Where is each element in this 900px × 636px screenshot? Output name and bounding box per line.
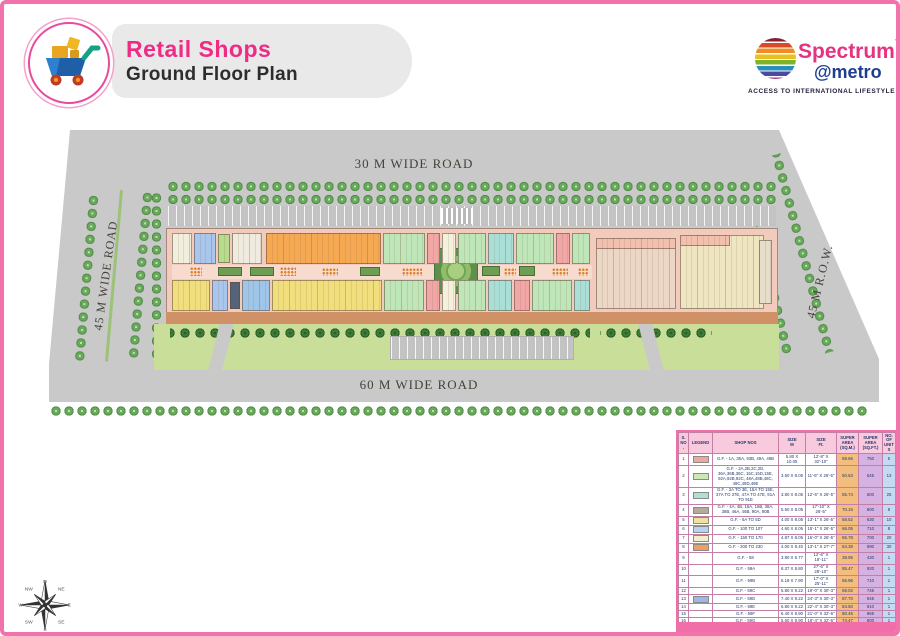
legend-row: 1G.F. - 1A, 35A, 93B, 49A, 49B5.80 X 10.… (679, 454, 896, 466)
shop-block (384, 280, 424, 311)
legend-cell: G.F. - 59C (713, 588, 779, 595)
legend-cell: 87.70 (837, 595, 859, 604)
legend-swatch-cell (689, 543, 713, 552)
legend-cell: 16'-0" X 26'-5" (806, 534, 837, 543)
compass-se: SE (58, 619, 65, 625)
legend-cell: 50.63 (837, 466, 859, 488)
legend-row: 4G.F. - 4A, 4B, 16A, 16B, 38A, 38B, 46A,… (679, 504, 896, 516)
legend-cell: 39.95 (837, 552, 859, 564)
shop-block (172, 280, 210, 311)
legend-row: 16G.F. - 59G5.60 X 9.9018'-4" X 32'-6"74… (679, 618, 896, 622)
legend-cell: 2 (679, 466, 689, 488)
legend-swatch-cell (689, 611, 713, 618)
legend-cell: 65.96 (837, 576, 859, 588)
corridor-planter (482, 266, 500, 276)
legend-swatch-cell (689, 534, 713, 543)
corridor-planter (360, 267, 380, 276)
legend-cell: 24'-3" X 30'-3" (806, 595, 837, 604)
legend-cell: 25 (883, 487, 896, 504)
legend-cell: 545 (859, 466, 883, 488)
shop-block (172, 233, 192, 264)
legend-cell: G.F. - 100 TO 107 (713, 525, 779, 534)
road-label-bottom: 60 M WIDE ROAD (339, 377, 499, 393)
legend-cell: 4 (679, 504, 689, 516)
legend-cell: 5 (679, 516, 689, 525)
legend-row: 7G.F. - 150 TO 1704.87 X 8.0516'-0" X 26… (679, 534, 896, 543)
legend-cell: 800 (859, 618, 883, 622)
legend-row: 8G.F. - 200 TO 2304.00 X 8.4013'-1" X 27… (679, 543, 896, 552)
legend-color-swatch (693, 517, 709, 524)
legend-cell: 6.80 X 9.22 (779, 604, 806, 611)
legend-cell: G.F. - 59G (713, 618, 779, 622)
legend-cell: 69.66 (837, 454, 859, 466)
legend-cell: 745 (859, 588, 883, 595)
legend-cell: 5.18 X 7.90 (779, 576, 806, 588)
cart-icon-badge (28, 22, 110, 104)
legend-cell: 865 (859, 611, 883, 618)
legend-header-row: S.NO.LEGENDSHOP NOSSIZEMSIZEFt.SUPER ARE… (679, 433, 896, 454)
legend-cell: 1 (679, 454, 689, 466)
legend-cell: 58.52 (837, 516, 859, 525)
legend-cell: 3.50 X 8.05 (779, 466, 806, 488)
corridor-seating (402, 268, 422, 276)
compass-nw: NW (25, 586, 34, 592)
legend-cell: 64.38 (837, 543, 859, 552)
legend-row: 5G.F. - 5A TO 5D4.00 X 8.0513'-1" X 26'-… (679, 516, 896, 525)
legend-cell: 13'-1" X 26'-5" (806, 516, 837, 525)
legend-cell: 22'-4" X 30'-3" (806, 604, 837, 611)
shop-block (230, 282, 240, 309)
legend-cell: 690 (859, 543, 883, 552)
trademark-symbol: TM (895, 40, 900, 46)
legend-column-header: SUPER AREA(SQ.M.) (837, 433, 859, 454)
shop-block (442, 280, 456, 311)
legend-cell: G.F. - 4A, 4B, 16A, 16B, 38A, 38B, 46A, … (713, 504, 779, 516)
legend-cell: 8 (883, 504, 896, 516)
legend-cell: 65.78 (837, 534, 859, 543)
crosswalk-north (441, 208, 473, 224)
shop-block (532, 280, 572, 311)
shop-block (556, 233, 570, 264)
legend-cell: 1 (883, 604, 896, 611)
legend-cell: G.F. - 200 TO 230 (713, 543, 779, 552)
legend-cell: 21'-0" X 32'-6" (806, 611, 837, 618)
legend-color-swatch (693, 596, 709, 603)
legend-column-header: S.NO. (679, 433, 689, 454)
shop-block (516, 233, 554, 264)
legend-cell: 700 (859, 534, 883, 543)
legend-row: 10G.F. - 59A8.37 X 8.8027'-6" X 28'-10"8… (679, 564, 896, 576)
corridor-planter (519, 266, 535, 276)
legend-row: 13G.F. - 59D7.40 X 9.2224'-3" X 30'-3"87… (679, 595, 896, 604)
legend-cell: 5.60 X 9.90 (779, 618, 806, 622)
legend-cell: 69.02 (837, 588, 859, 595)
legend-cell: 945 (859, 595, 883, 604)
legend-cell: G.F. - 5A TO 5D (713, 516, 779, 525)
legend-swatch-cell (689, 454, 713, 466)
legend-cell: 11'-6" X 26'-5" (806, 466, 837, 488)
legend-cell: 3.80 X 8.05 (779, 487, 806, 504)
legend-cell: 5 (883, 454, 896, 466)
legend-cell: 5.80 X 10.05 (779, 454, 806, 466)
shop-block (383, 233, 425, 264)
legend-cell: 74.47 (837, 618, 859, 622)
legend-column-header: NO. OFUNITS (883, 433, 896, 454)
shop-block (194, 233, 216, 264)
legend-cell: 4.87 X 8.05 (779, 534, 806, 543)
legend-cell: 1 (883, 595, 896, 604)
shop-block (212, 280, 228, 311)
legend-cell: 85.47 (837, 564, 859, 576)
legend-swatch-cell (689, 552, 713, 564)
corridor-seating (552, 268, 568, 276)
legend-cell: G.F. - 59B (713, 576, 779, 588)
legend-cell: 14 (679, 604, 689, 611)
corridor-planter (218, 267, 242, 276)
corridor-planter (250, 267, 274, 276)
legend-cell: 710 (859, 576, 883, 588)
legend-cell: 1 (883, 611, 896, 618)
spectrum-logo-icon (755, 38, 796, 79)
legend-color-swatch (693, 526, 709, 533)
compass-e: E (68, 603, 72, 609)
legend-cell: 55.74 (837, 487, 859, 504)
legend-column-header: SHOP NOS (713, 433, 779, 454)
shop-block (488, 233, 514, 264)
legend-cell: 16 (679, 618, 689, 622)
road-label-top: 30 M WIDE ROAD (334, 156, 494, 172)
legend-cell: 80.45 (837, 611, 859, 618)
tree-row-below-bottom-road (50, 404, 868, 418)
brand-name: SpectrumTM (798, 40, 900, 64)
legend-table: S.NO.LEGENDSHOP NOSSIZEMSIZEFt.SUPER ARE… (678, 432, 895, 622)
legend-cell: 800 (859, 504, 883, 516)
legend-cell: 30 (883, 543, 896, 552)
corridor-seating (190, 267, 202, 276)
legend-cell: 8 (883, 525, 896, 534)
legend-cell: 19'-0" X 30'-3" (806, 588, 837, 595)
shop-block (272, 280, 382, 311)
legend-swatch-cell (689, 604, 713, 611)
legend-cell: 750 (859, 454, 883, 466)
shop-block (596, 238, 676, 249)
south-apron (166, 312, 778, 324)
legend-cell: 630 (859, 516, 883, 525)
shop-block (442, 233, 456, 264)
legend-cell: 6 (679, 525, 689, 534)
legend-cell: 13'-1" X 27'-7" (806, 543, 837, 552)
legend-cell: 12'-6" X 18'-11" (806, 552, 837, 564)
legend-cell: 12'-6" X 26'-5" (806, 487, 837, 504)
legend-cell: 1 (883, 552, 896, 564)
tree-row-top-2 (166, 193, 778, 206)
legend-cell: 70.16 (837, 504, 859, 516)
legend-cell: 1 (883, 564, 896, 576)
legend-cell: 8 (679, 543, 689, 552)
legend-cell: 27'-6" X 28'-10" (806, 564, 837, 576)
legend-cell: 17'-10" X 26'-5" (806, 504, 837, 516)
legend-cell: 7 (679, 534, 689, 543)
shop-block (427, 233, 440, 264)
legend-cell: 4.00 X 8.40 (779, 543, 806, 552)
legend-panel: S.NO.LEGENDSHOP NOSSIZEMSIZEFt.SUPER ARE… (676, 430, 897, 632)
legend-cell: 5.50 X 8.05 (779, 504, 806, 516)
page-title: Retail Shops (126, 36, 271, 63)
shop-block (574, 280, 590, 311)
compass-rose: N NE E SE S SW W NW (18, 578, 72, 632)
corridor-seating (578, 268, 588, 276)
shop-block (680, 235, 764, 309)
page: Retail Shops Ground Floor Plan SpectrumT… (0, 0, 900, 636)
shop-block (458, 233, 486, 264)
tree-row-top-1 (166, 180, 778, 193)
legend-cell: 7.40 X 9.22 (779, 595, 806, 604)
legend-swatch-cell (689, 466, 713, 488)
compass-ne: NE (58, 586, 66, 592)
page-subtitle: Ground Floor Plan (126, 64, 298, 86)
legend-column-header: SIZEFt. (806, 433, 837, 454)
shopping-cart-icon (30, 24, 104, 98)
legend-column-header: SUPER AREA(SQ.FT.) (859, 433, 883, 454)
legend-cell: 11 (679, 576, 689, 588)
legend-row: 12G.F. - 59C5.80 X 9.2219'-0" X 30'-3"69… (679, 588, 896, 595)
legend-cell: 13 (883, 466, 896, 488)
legend-cell: 3.80 X 5.77 (779, 552, 806, 564)
legend-row: 2G.F. - 2A,2B,2C,2D, 36A,36B,36C, 15C,15… (679, 466, 896, 488)
legend-cell: G.F. - 59A (713, 564, 779, 576)
legend-column-header: SIZEM (779, 433, 806, 454)
south-parking-bay (390, 336, 574, 360)
legend-row: 11G.F. - 59B5.18 X 7.9017'-0" X 25'-11"6… (679, 576, 896, 588)
legend-cell: 710 (859, 525, 883, 534)
compass-w: W (18, 603, 23, 609)
legend-cell: G.F. - 58 (713, 552, 779, 564)
shop-block (426, 280, 440, 311)
shop-block (759, 240, 772, 304)
legend-cell: 17'-0" X 25'-11" (806, 576, 837, 588)
legend-cell: G.F. - 150 TO 170 (713, 534, 779, 543)
legend-cell: 66.05 (837, 525, 859, 534)
south-lawn-trees-2 (600, 326, 712, 340)
legend-swatch-cell (689, 595, 713, 604)
compass-s: S (43, 627, 47, 632)
shop-block (458, 280, 486, 311)
legend-cell: 9 (679, 552, 689, 564)
legend-cell: G.F. - 2A,2B,2C,2D, 36A,36B,36C, 15C,15D… (713, 466, 779, 488)
legend-row: 6G.F. - 100 TO 1074.60 X 8.0515'-1" X 26… (679, 525, 896, 534)
shop-block (218, 234, 230, 263)
legend-cell: 20 (883, 534, 896, 543)
legend-cell: 10 (883, 516, 896, 525)
corridor-seating (280, 267, 296, 276)
legend-color-swatch (693, 535, 709, 542)
brand-tagline: ACCESS TO INTERNATIONAL LIFESTYLE (748, 88, 895, 95)
legend-cell: G.F. - 59E (713, 604, 779, 611)
legend-cell: 6.40 X 9.90 (779, 611, 806, 618)
corridor-seating (322, 268, 338, 276)
legend-cell: 4.60 X 8.05 (779, 525, 806, 534)
legend-cell: G.F. - 59D (713, 595, 779, 604)
shop-block (488, 280, 512, 311)
legend-cell: 910 (859, 604, 883, 611)
brand-name-secondary: @metro (814, 62, 882, 83)
legend-row: 15G.F. - 59F6.40 X 9.9021'-0" X 32'-6"80… (679, 611, 896, 618)
legend-row: 14G.F. - 59E6.80 X 9.2222'-4" X 30'-3"84… (679, 604, 896, 611)
legend-swatch-cell (689, 576, 713, 588)
shop-block (514, 280, 530, 311)
legend-cell: 920 (859, 564, 883, 576)
legend-swatch-cell (689, 487, 713, 504)
legend-cell: G.F. - 3A TO 3E, 15A TO 15E, 37A TO 37E,… (713, 487, 779, 504)
compass-n: N (43, 579, 47, 585)
legend-swatch-cell (689, 588, 713, 595)
legend-cell: 13 (679, 595, 689, 604)
legend-color-swatch (693, 507, 709, 514)
legend-swatch-cell (689, 618, 713, 622)
legend-color-swatch (693, 473, 709, 480)
legend-color-swatch (693, 456, 709, 463)
legend-column-header: LEGEND (689, 433, 713, 454)
legend-cell: 3 (679, 487, 689, 504)
legend-color-swatch (693, 492, 709, 499)
legend-cell: 10 (679, 564, 689, 576)
legend-cell: 1 (883, 588, 896, 595)
legend-cell: 430 (859, 552, 883, 564)
corridor-seating (504, 268, 516, 276)
legend-swatch-cell (689, 504, 713, 516)
legend-cell: 12 (679, 588, 689, 595)
legend-cell: 15 (679, 611, 689, 618)
compass-sw: SW (25, 619, 33, 625)
legend-cell: 5.80 X 9.22 (779, 588, 806, 595)
legend-row: 3G.F. - 3A TO 3E, 15A TO 15E, 37A TO 37E… (679, 487, 896, 504)
legend-cell: G.F. - 59F (713, 611, 779, 618)
legend-cell: 600 (859, 487, 883, 504)
legend-cell: 84.50 (837, 604, 859, 611)
legend-cell: 8.37 X 8.80 (779, 564, 806, 576)
shop-block (266, 233, 381, 264)
legend-cell: 4.00 X 8.05 (779, 516, 806, 525)
legend-cell: 12'-8" X 32'-10" (806, 454, 837, 466)
shop-block (242, 280, 270, 311)
shop-block (572, 233, 590, 264)
shop-block (232, 233, 262, 264)
legend-color-swatch (693, 544, 709, 551)
legend-cell: 1 (883, 618, 896, 622)
legend-swatch-cell (689, 525, 713, 534)
legend-cell: 1 (883, 576, 896, 588)
legend-swatch-cell (689, 516, 713, 525)
shop-block (680, 235, 730, 246)
legend-cell: 18'-4" X 32'-6" (806, 618, 837, 622)
legend-cell: G.F. - 1A, 35A, 93B, 49A, 49B (713, 454, 779, 466)
legend-row: 9G.F. - 583.80 X 5.7712'-6" X 18'-11"39.… (679, 552, 896, 564)
legend-cell: 15'-1" X 26'-5" (806, 525, 837, 534)
legend-swatch-cell (689, 564, 713, 576)
